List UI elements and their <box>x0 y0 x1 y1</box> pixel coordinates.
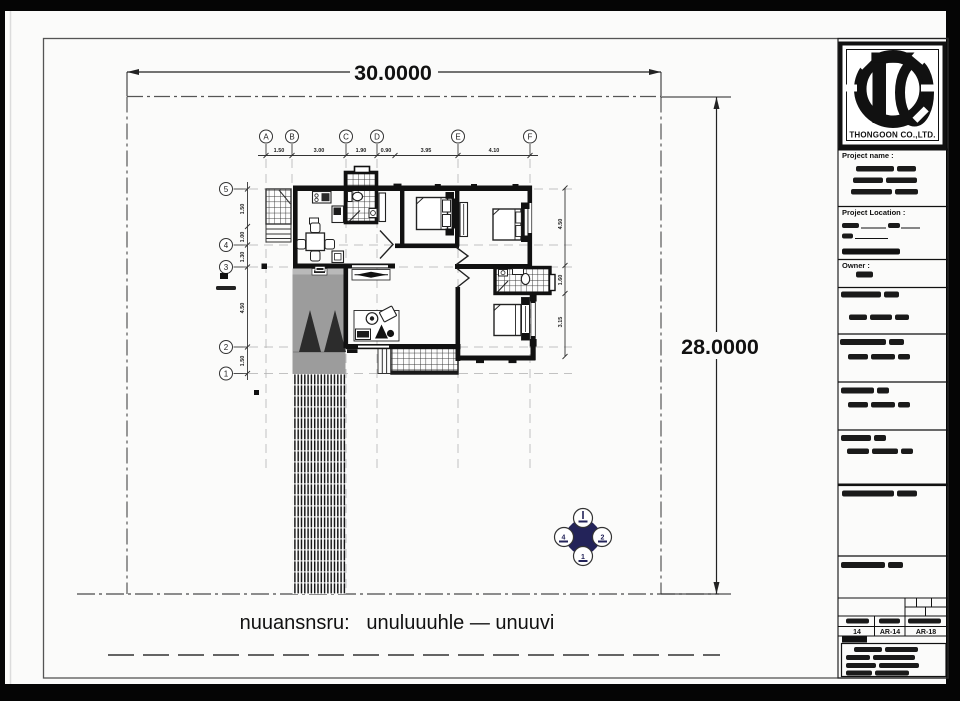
svg-text:Project Location :: Project Location : <box>842 208 905 217</box>
svg-text:4: 4 <box>224 241 229 250</box>
svg-text:1.30: 1.30 <box>240 252 246 263</box>
svg-text:1.50: 1.50 <box>240 204 246 215</box>
svg-text:THONGOON CO.,LTD.: THONGOON CO.,LTD. <box>849 131 935 140</box>
svg-text:1.00: 1.00 <box>240 232 246 243</box>
svg-text:C: C <box>343 133 349 142</box>
svg-text:30.0000: 30.0000 <box>354 61 432 85</box>
svg-text:B: B <box>289 133 294 142</box>
svg-text:F: F <box>528 133 533 142</box>
svg-text:Project name :: Project name : <box>842 151 894 160</box>
svg-text:0.90: 0.90 <box>381 148 392 154</box>
svg-text:4: 4 <box>562 535 566 542</box>
svg-text:E: E <box>455 133 460 142</box>
svg-text:3.95: 3.95 <box>421 148 432 154</box>
svg-text:1.50: 1.50 <box>274 148 285 154</box>
svg-text:nuuansnsru: unuluuuhle — unu: nuuansnsru: unuluuuhle — unuuvi <box>240 612 555 634</box>
svg-text:AR-14: AR-14 <box>880 629 900 636</box>
svg-text:3: 3 <box>224 263 229 272</box>
svg-text:D: D <box>374 133 380 142</box>
svg-text:1.90: 1.90 <box>356 148 367 154</box>
svg-text:1.50: 1.50 <box>240 356 246 367</box>
svg-text:14: 14 <box>853 629 861 636</box>
svg-text:5: 5 <box>224 185 229 194</box>
svg-text:1: 1 <box>224 370 229 379</box>
svg-text:1.60: 1.60 <box>558 275 564 286</box>
svg-text:28.0000: 28.0000 <box>681 335 759 359</box>
svg-text:AR-18: AR-18 <box>916 629 936 636</box>
svg-text:Owner :: Owner : <box>842 261 870 270</box>
svg-text:4.50: 4.50 <box>240 303 246 314</box>
svg-text:2: 2 <box>224 343 229 352</box>
svg-text:1: 1 <box>581 554 585 561</box>
svg-text:3.15: 3.15 <box>558 317 564 328</box>
svg-text:3.00: 3.00 <box>314 148 325 154</box>
svg-text:2: 2 <box>601 535 605 542</box>
svg-text:A: A <box>263 133 269 142</box>
svg-text:4.50: 4.50 <box>558 219 564 230</box>
svg-text:4.10: 4.10 <box>489 148 500 154</box>
